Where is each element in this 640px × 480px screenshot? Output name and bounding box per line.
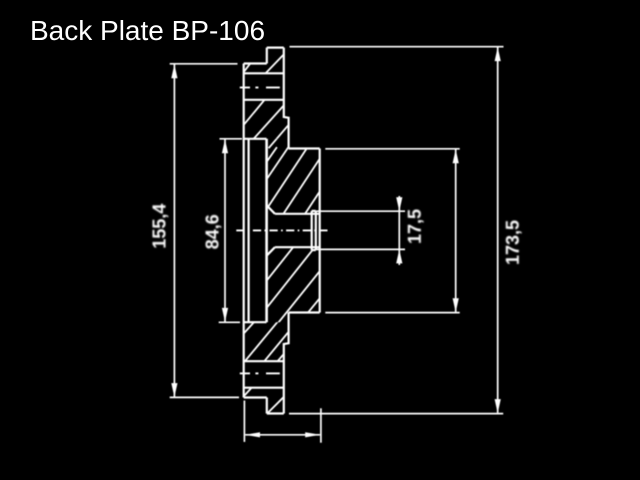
svg-text:Back Plate BP-106: Back Plate BP-106	[30, 15, 265, 46]
svg-text:17,5: 17,5	[405, 209, 425, 244]
svg-text:84,6: 84,6	[203, 214, 223, 249]
svg-text:155,4: 155,4	[150, 204, 170, 249]
svg-text:173,5: 173,5	[503, 220, 523, 265]
